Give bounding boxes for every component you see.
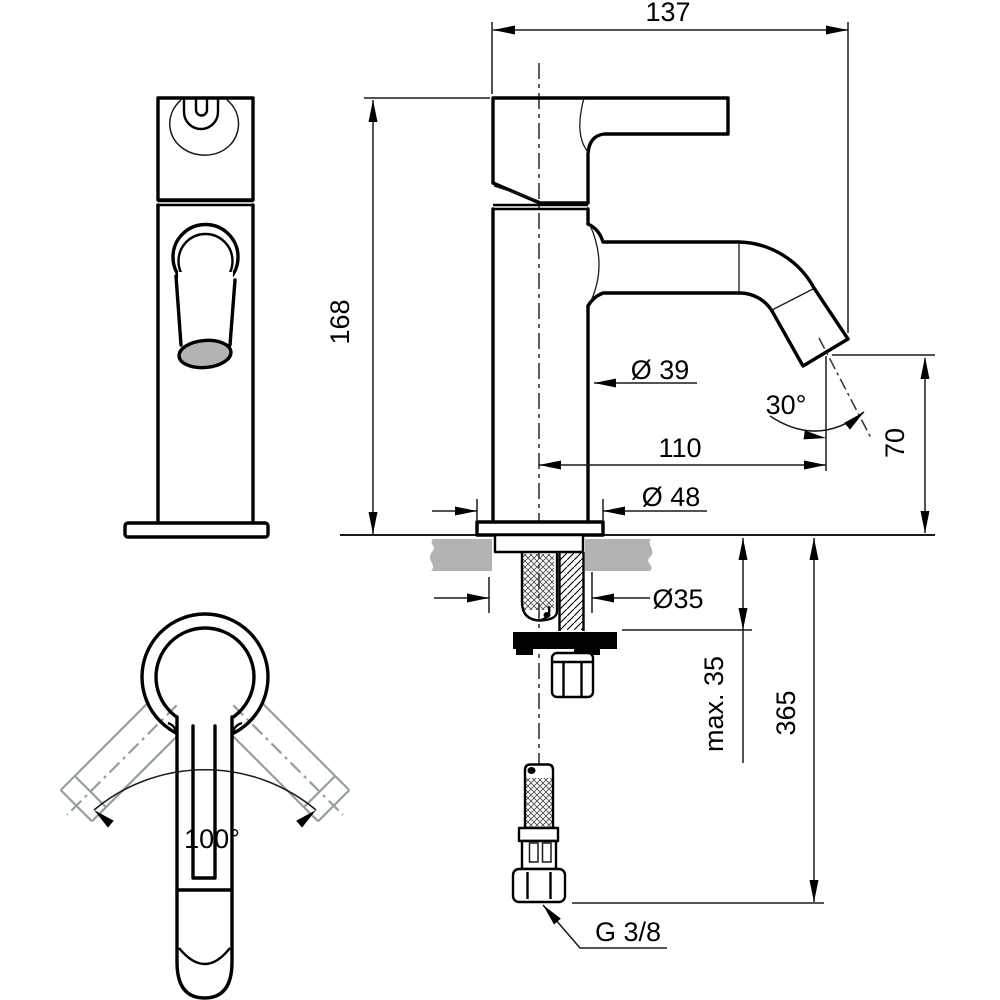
hose-upper-end-dot bbox=[544, 612, 551, 618]
label-overall-height: 168 bbox=[325, 299, 355, 344]
counter-section-right bbox=[585, 539, 652, 571]
label-base-diameter: Ø 48 bbox=[642, 482, 701, 512]
mounting-nut bbox=[552, 653, 593, 697]
counter-section-left bbox=[430, 539, 492, 571]
mounting-collar bbox=[495, 535, 583, 552]
connector-hex-nut bbox=[513, 869, 565, 902]
label-hose-length: 365 bbox=[771, 690, 801, 735]
label-spout-angle: 30° bbox=[766, 390, 807, 420]
background bbox=[0, 0, 1000, 1000]
label-max-deck-thickness: max. 35 bbox=[699, 656, 729, 752]
label-body-diameter: Ø 39 bbox=[631, 355, 690, 385]
front-spout-mask bbox=[178, 272, 233, 350]
front-base-plate bbox=[125, 523, 268, 537]
hose-lower-end-dot bbox=[528, 767, 536, 774]
hose-upper-braid bbox=[523, 554, 554, 610]
top-handle-mask bbox=[177, 702, 232, 892]
label-connection-thread: G 3/8 bbox=[595, 917, 661, 947]
faucet-dimension-drawing: 100° bbox=[0, 0, 1000, 1000]
hose-ferrule bbox=[519, 828, 558, 841]
label-overall-width: 137 bbox=[645, 0, 690, 27]
label-outlet-height: 70 bbox=[880, 428, 910, 458]
washer-tab-left bbox=[516, 649, 533, 655]
base-flange bbox=[477, 522, 603, 535]
threaded-rod-hatch bbox=[560, 553, 583, 630]
faucet-dimension-drawing-page: 100° bbox=[0, 0, 1000, 1000]
label-swivel-angle: 100° bbox=[184, 824, 240, 854]
label-spout-reach: 110 bbox=[658, 433, 701, 463]
label-mounting-hole-diameter: Ø35 bbox=[652, 584, 703, 614]
mounting-washer bbox=[513, 632, 617, 649]
